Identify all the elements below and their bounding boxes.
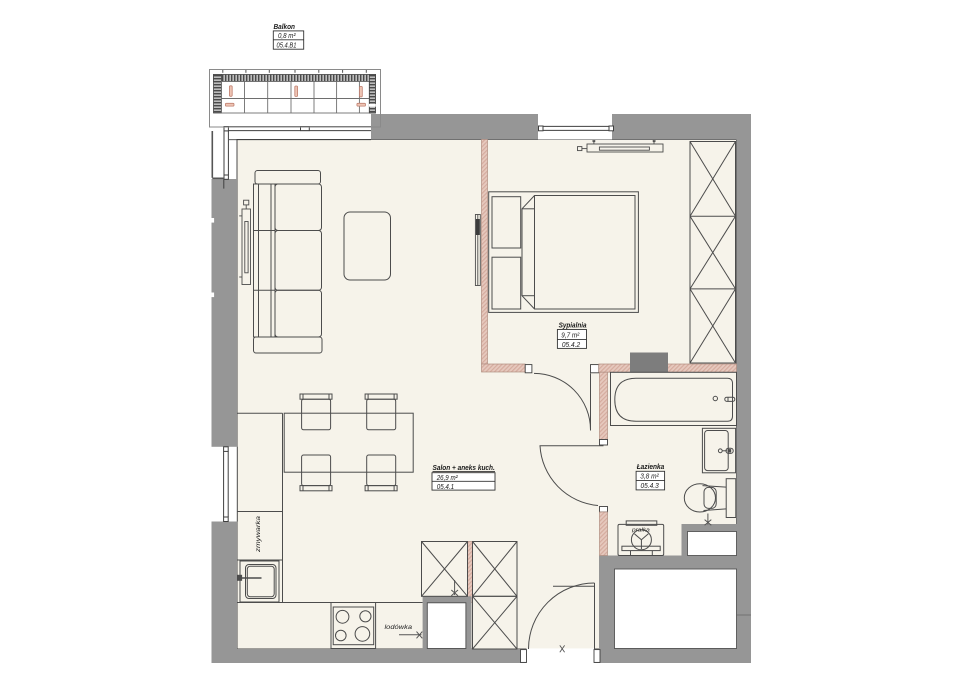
svg-text:Balkon: Balkon xyxy=(274,22,296,31)
svg-text:05.4.1: 05.4.1 xyxy=(437,484,455,491)
svg-text:lodówka: lodówka xyxy=(385,624,413,631)
svg-text:Salon + aneks kuch.: Salon + aneks kuch. xyxy=(433,463,495,472)
svg-text:26,9 m²: 26,9 m² xyxy=(436,475,458,482)
svg-text:Sypialnia: Sypialnia xyxy=(559,321,587,330)
svg-text:05.4.2: 05.4.2 xyxy=(562,342,580,349)
svg-text:05.4.3: 05.4.3 xyxy=(641,483,659,490)
svg-text:05.4.B1: 05.4.B1 xyxy=(277,42,297,49)
svg-text:zmywarka: zmywarka xyxy=(255,516,262,554)
svg-text:0,8 m²: 0,8 m² xyxy=(278,33,296,40)
svg-text:9,7 m²: 9,7 m² xyxy=(561,333,580,340)
svg-text:3,8 m²: 3,8 m² xyxy=(640,474,659,481)
svg-text:Łazienka: Łazienka xyxy=(636,462,664,471)
svg-text:pralka: pralka xyxy=(631,527,651,533)
